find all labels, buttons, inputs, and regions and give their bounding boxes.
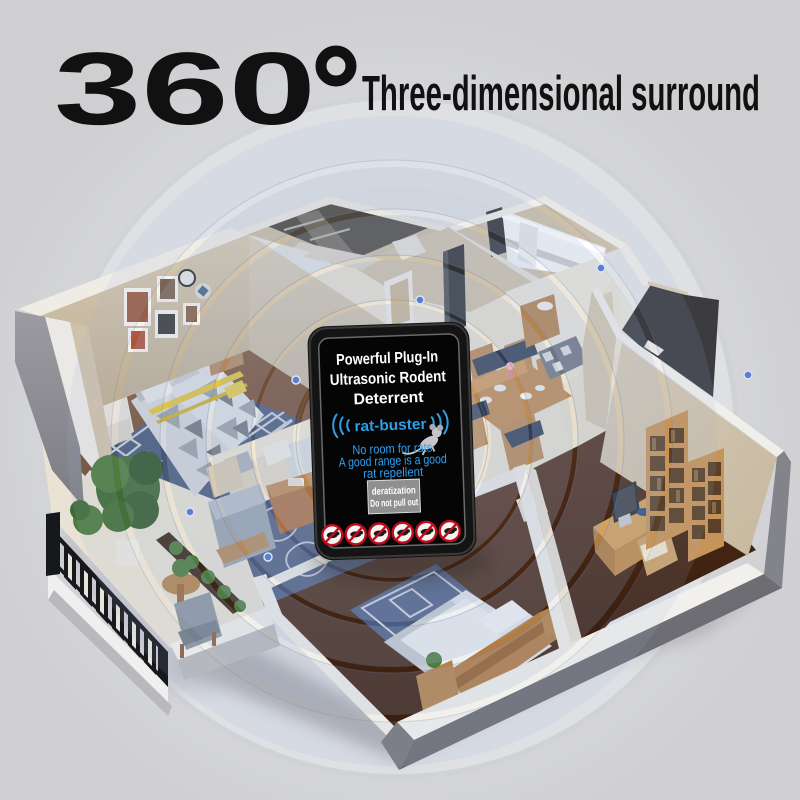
- svg-text:Three-dimensional surround: Three-dimensional surround: [362, 67, 760, 121]
- svg-text:Do not pull out: Do not pull out: [370, 497, 419, 510]
- svg-text:rat-buster: rat-buster: [354, 416, 427, 436]
- svg-text:360: 360: [54, 31, 316, 146]
- svg-text:Powerful Plug-In: Powerful Plug-In: [336, 348, 439, 369]
- svg-text:Deterrent: Deterrent: [353, 389, 424, 408]
- svg-text:rat repellent: rat repellent: [363, 464, 424, 481]
- svg-text:deratization: deratization: [372, 485, 416, 498]
